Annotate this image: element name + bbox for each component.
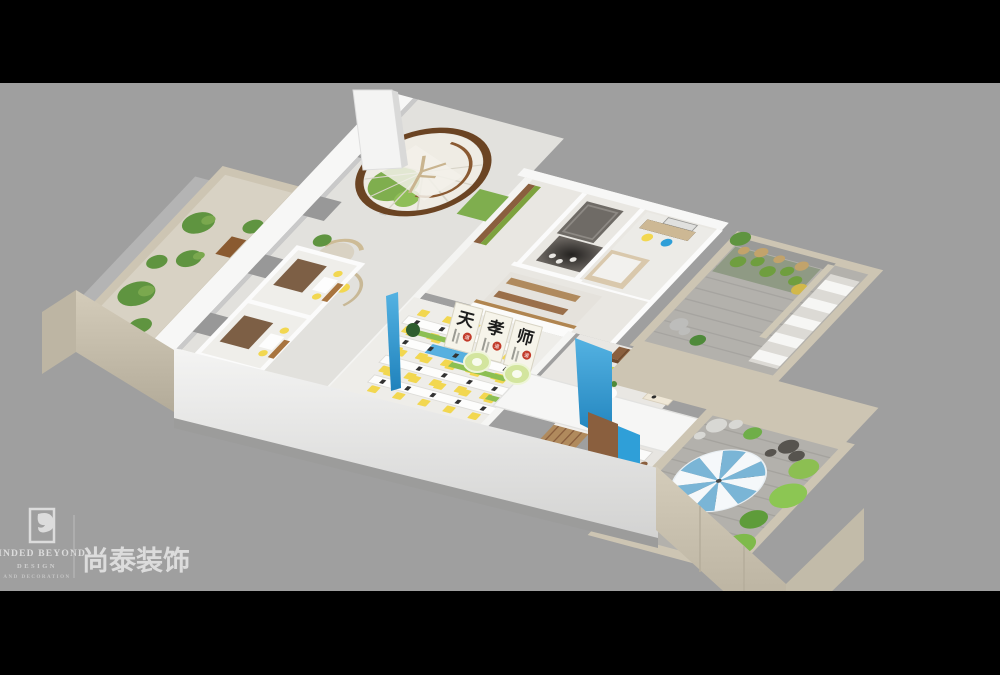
logo-text-decoration: AND DECORATION bbox=[3, 575, 70, 580]
floorplan-render: 天 道 孝 道 师 道 bbox=[0, 0, 1000, 675]
logo-text-design: DESIGN bbox=[17, 563, 57, 570]
topiary-ball bbox=[406, 323, 420, 337]
rendering-canvas: 天 道 孝 道 师 道 bbox=[0, 0, 1000, 675]
logo-text-en: MINDED BEYOND bbox=[0, 549, 86, 559]
logo-text-cn: 尚泰装饰 bbox=[82, 546, 190, 577]
letterbox-top bbox=[0, 0, 1000, 83]
letterbox-bottom bbox=[0, 591, 1000, 675]
